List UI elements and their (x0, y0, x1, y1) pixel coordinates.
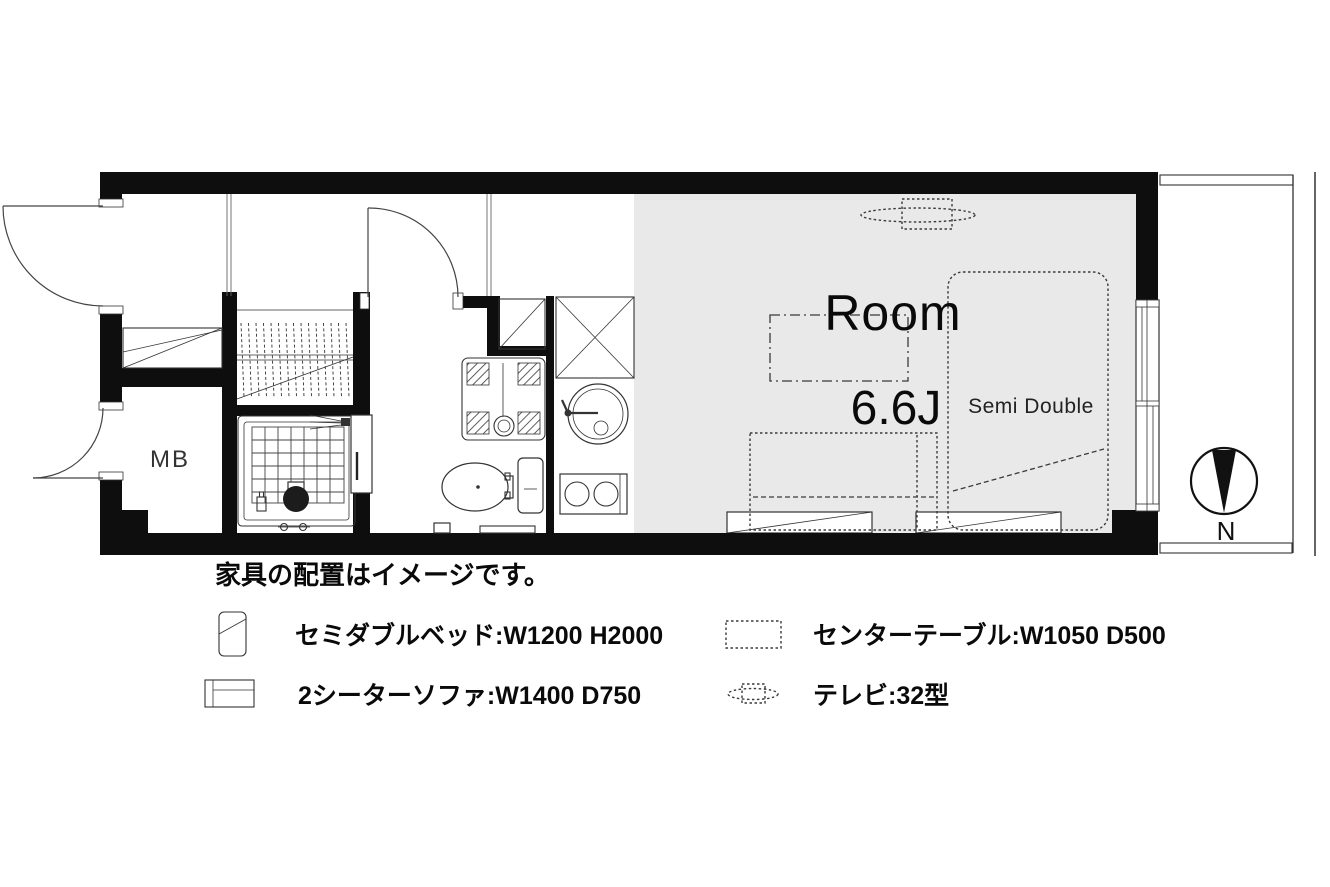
shoe-cabinet (123, 328, 222, 368)
bath-stool (283, 486, 309, 512)
wall-south (100, 533, 1158, 555)
floor-plan-page: MB (0, 0, 1330, 887)
room-size-label: 6.6J (851, 382, 942, 435)
toilet-tank (518, 458, 543, 513)
wall-mb-top (122, 368, 222, 387)
wall-southeast-block (1112, 510, 1158, 533)
bed-icon (219, 612, 246, 656)
balcony-rail-top (1160, 175, 1293, 185)
wall-west-mid (100, 312, 122, 408)
legend: 家具の配置はイメージです。 セミダブルベッド:W1200 H2000 2シーター… (205, 560, 1166, 710)
bath-faucet-marks (278, 524, 310, 531)
legend-item-bed: セミダブルベッド:W1200 H2000 (295, 621, 663, 650)
legend-item-tv: テレビ:32型 (813, 682, 949, 710)
toilet-bowl (442, 463, 508, 511)
main-room-floor (634, 194, 1136, 533)
tv-icon (728, 684, 778, 703)
wall-southwest-block (122, 510, 148, 533)
floor-plan-svg: MB (0, 0, 1330, 887)
closet (237, 310, 353, 399)
kitchen (560, 384, 628, 514)
east-window (1136, 300, 1159, 511)
meter-box-label: MB (150, 446, 190, 473)
window-counter-right (916, 512, 1061, 533)
legend-note: 家具の配置はイメージです。 (215, 560, 550, 590)
legend-item-sofa: 2シーターソファ:W1400 D750 (298, 682, 641, 710)
wall-east-top (1136, 194, 1158, 300)
compass: N (1191, 448, 1257, 546)
bed-size-label: Semi Double (968, 395, 1094, 418)
wall-north (100, 172, 1158, 194)
meter-box-door (33, 402, 123, 480)
legend-item-table: センターテーブル:W1050 D500 (813, 621, 1166, 650)
hall-partition-lines (227, 194, 491, 296)
shower-pan (462, 358, 545, 440)
room-label: Room (824, 285, 961, 341)
wall-bath-top (230, 405, 353, 416)
bathroom (238, 415, 372, 531)
kitchen-sink (562, 384, 628, 444)
toilet-remote (434, 523, 450, 533)
toilet-room (360, 208, 545, 533)
bath-door (351, 415, 372, 493)
wall-utility-south (487, 346, 554, 356)
wc-door-swing (368, 208, 458, 297)
sofa-icon (205, 680, 254, 707)
wall-kitchen-west (546, 296, 554, 533)
wall-utility-west (487, 296, 500, 350)
kitchen-stove (560, 474, 627, 514)
compass-north-label: N (1217, 516, 1236, 546)
wall-west-bottom (100, 478, 122, 555)
table-icon (726, 621, 781, 648)
entrance-door (3, 199, 123, 314)
toilet (434, 458, 543, 533)
